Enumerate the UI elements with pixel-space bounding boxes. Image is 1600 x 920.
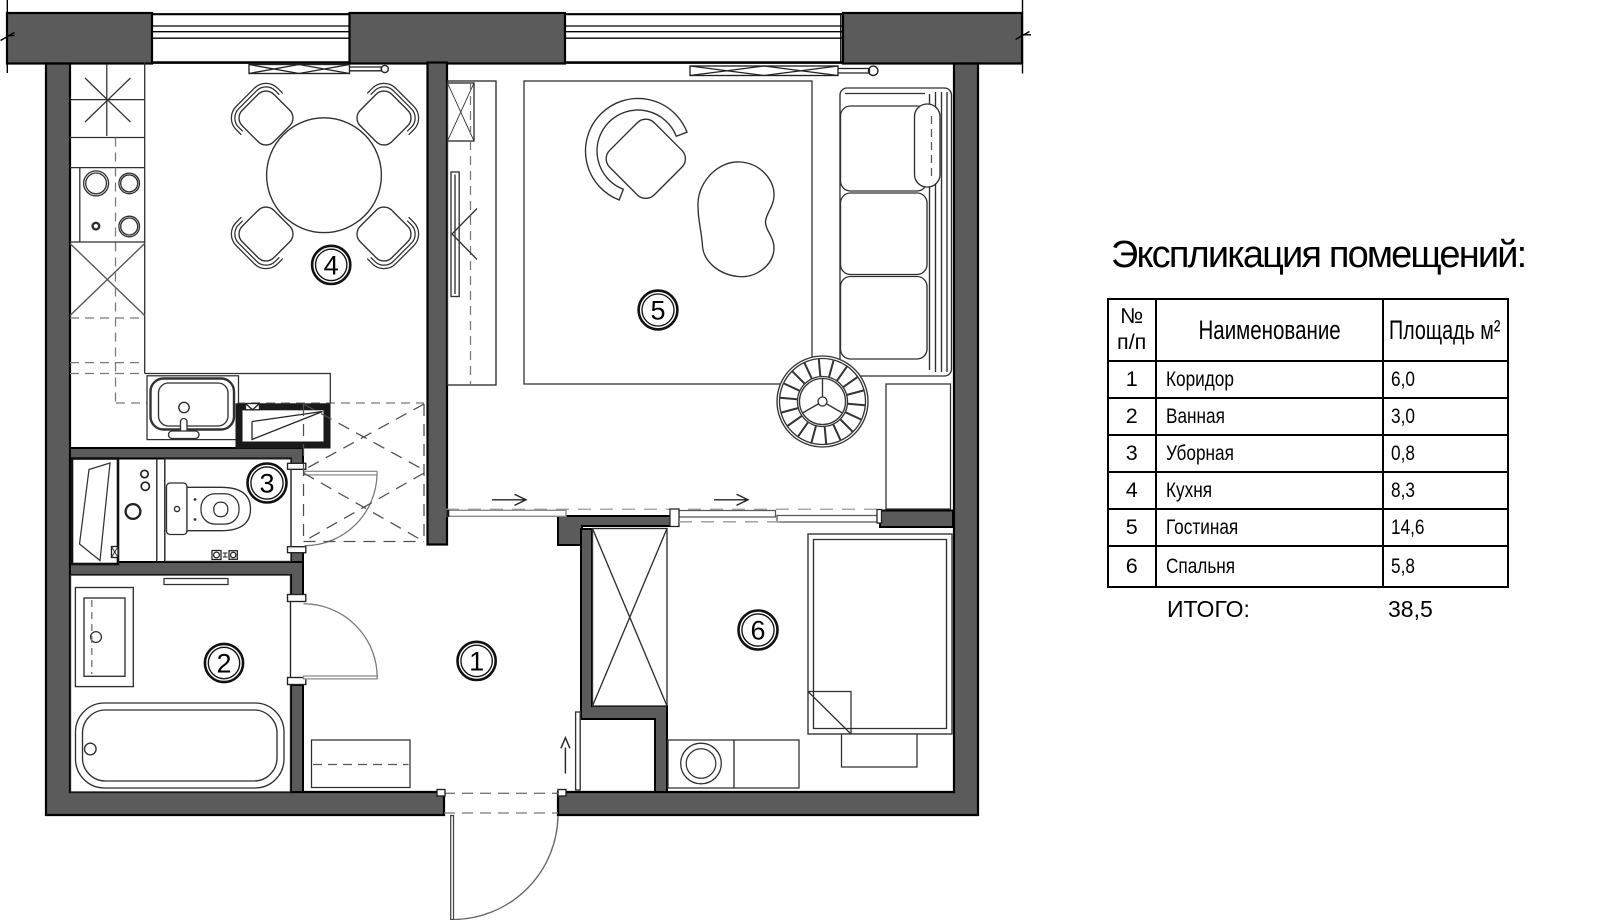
svg-text:6: 6 xyxy=(750,615,765,645)
svg-text:1: 1 xyxy=(469,646,484,676)
svg-text:2: 2 xyxy=(216,648,231,678)
svg-text:3: 3 xyxy=(259,468,274,498)
svg-text:4: 4 xyxy=(324,250,339,280)
svg-text:5: 5 xyxy=(650,295,665,325)
